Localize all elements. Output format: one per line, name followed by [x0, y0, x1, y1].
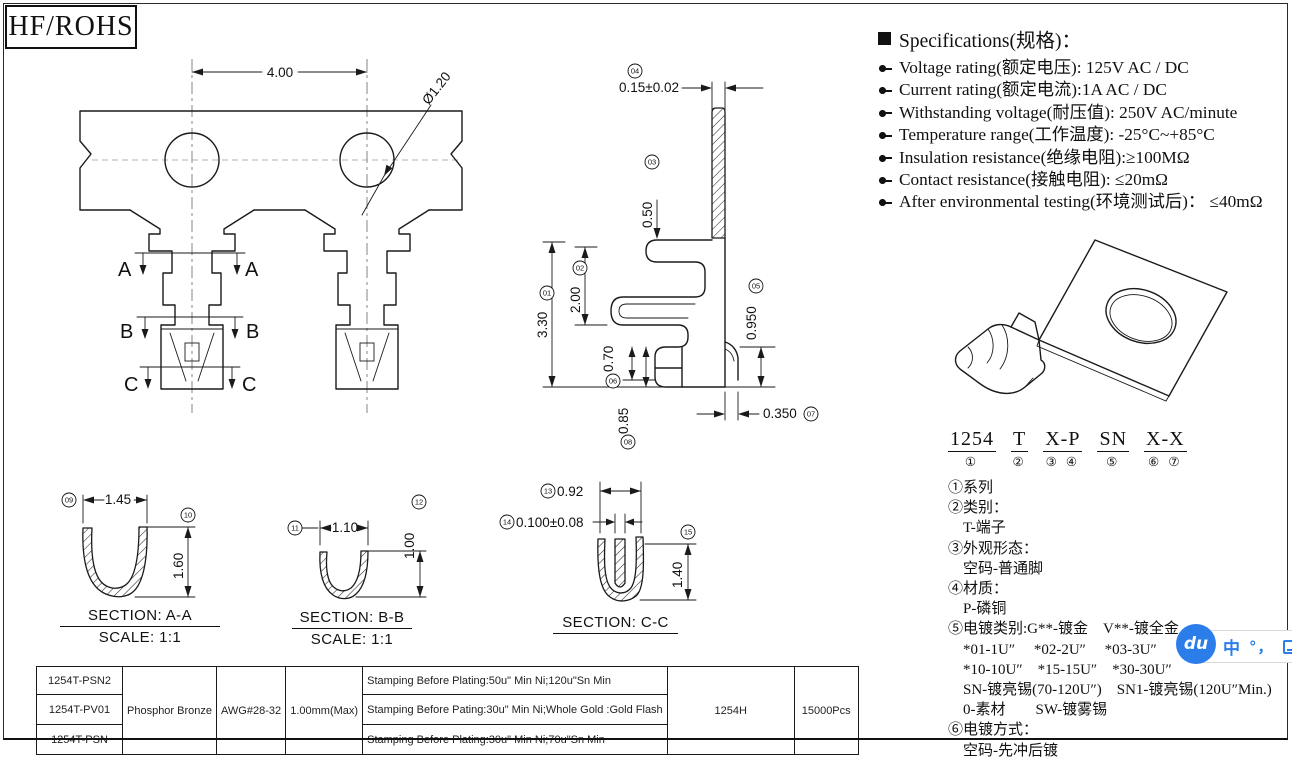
plating-cell: Stamping Before Plating:50u" Min Ni;120u…	[363, 667, 668, 695]
legend-line: SN-镀亮锡(70-120U″) SN1-镀亮锡(120U″Min.)	[948, 680, 1292, 700]
cut-line-c	[140, 367, 240, 381]
plate-hole	[1098, 279, 1183, 352]
plating-cell: Stamping Before Plating:30u" Min Ni;70u"…	[363, 725, 668, 755]
specs-list: Voltage rating(额定电压): 125V AC / DC Curre…	[878, 57, 1288, 214]
spec-item: Current rating(额定电流):1A AC / DC	[878, 79, 1288, 101]
specs-heading: Specifications(规格)：	[878, 24, 1288, 53]
section-aa-drawing: 1.45 09 1.60 10	[55, 485, 265, 607]
part-number-cell: 1254T-PSN2	[37, 667, 123, 695]
plating-cell: Stamping Before Pating:30u" Min Ni;Whole…	[363, 695, 668, 725]
insulation-cell: 1.00mm(Max)	[286, 667, 363, 755]
arrowhead	[140, 265, 147, 275]
dim-overall-height: 3.30	[535, 312, 550, 338]
dim-aa-height: 1.60	[171, 553, 186, 579]
section-aa-scale: SCALE: 1:1	[60, 627, 220, 646]
section-mark-c: C	[242, 374, 256, 396]
section-bb-drawing: 1.10 11 1.00 12	[280, 485, 470, 607]
balloon-12: 12	[412, 495, 426, 509]
pn-segment: X-X ⑥ ⑦	[1144, 428, 1187, 470]
svg-text:15: 15	[684, 528, 692, 537]
plate-thickness-edge	[1037, 340, 1169, 401]
balloon-13: 13	[541, 484, 555, 498]
balloon-11: 11	[288, 521, 302, 535]
arrowhead	[145, 379, 152, 389]
section-mark-b: B	[120, 321, 133, 343]
arrowhead	[384, 165, 392, 176]
legend-line: ②类别：	[948, 498, 1292, 518]
balloon-08: 08	[621, 435, 635, 449]
section-bb-scale: SCALE: 1:1	[292, 629, 412, 648]
balloon-07: 07	[804, 407, 818, 421]
legend-line: 空码-普通脚	[948, 559, 1292, 579]
pn-segment: 1254 ①	[948, 428, 996, 470]
balloon-14: 14	[500, 515, 514, 529]
dim-6: 0.70	[601, 346, 616, 372]
side-view-drawing: 3.30 01 2.00 02 0.50 03 0.15±0.02 04 0.9…	[535, 50, 865, 470]
arrowhead	[192, 69, 203, 76]
dim-pitch: 4.00	[267, 65, 293, 80]
balloon-02: 02	[573, 261, 587, 275]
dim-7: 0.350	[763, 406, 797, 421]
svg-text:04: 04	[631, 67, 639, 76]
section-mark-c: C	[124, 374, 138, 396]
dim-aa-width: 1.45	[105, 492, 131, 507]
dim-cc-width: 0.92	[557, 484, 583, 499]
arrowhead	[229, 379, 236, 389]
part-number-legend: ①系列 ②类别： T-端子 ③外观形态： 空码-普通脚 ④材质： P-磷铜 ⑤电…	[948, 478, 1292, 761]
section-mark-a: A	[118, 259, 132, 281]
u-channel	[320, 551, 368, 599]
part-number-cell: 1254T-PV01	[37, 695, 123, 725]
section-cc-label: SECTION: C-C	[553, 614, 678, 634]
section-bb-label: SECTION: B-B SCALE: 1:1	[292, 609, 412, 648]
balloon-09: 09	[62, 493, 76, 507]
center-lance	[615, 539, 625, 587]
spec-item: Insulation resistance(绝缘电阻):≥100MΩ	[878, 147, 1288, 169]
crimp-barrel	[655, 347, 682, 387]
dim-cc-slot: 0.100±0.08	[516, 515, 583, 530]
svg-text:09: 09	[65, 496, 73, 505]
front-view-drawing: 4.00 Ø1.20 A A B B C C	[40, 45, 510, 480]
arrowhead	[234, 265, 241, 275]
ime-punctuation-toggle[interactable]: °，	[1249, 636, 1274, 657]
title-block: HF/ROHS	[5, 5, 137, 49]
ime-logo[interactable]: du	[1176, 624, 1216, 664]
balloon-04: 04	[628, 64, 642, 78]
svg-text:14: 14	[503, 518, 511, 527]
terminal-3d-view	[945, 228, 1245, 433]
legend-line: ④材质：	[948, 579, 1292, 599]
spec-item: Contact resistance(接触电阻): ≤20mΩ	[878, 169, 1288, 191]
section-mark-a: A	[245, 259, 259, 281]
legend-line: 空码-先冲后镀	[948, 741, 1292, 761]
terminal-body	[956, 325, 1045, 394]
spec-item: Withstanding voltage(耐压值): 250V AC/minut…	[878, 102, 1288, 124]
beam-inner-line	[619, 304, 695, 318]
section-aa-title: SECTION: A-A	[60, 607, 220, 627]
section-cc-title: SECTION: C-C	[553, 614, 678, 634]
dim-5: 0.950	[744, 306, 759, 340]
svg-text:08: 08	[624, 438, 632, 447]
spec-item: After environmental testing(环境测试后)： ≤40m…	[878, 191, 1288, 213]
spec-item: Temperature range(工作温度): -25°C~+85°C	[878, 124, 1288, 146]
legend-line: ①系列	[948, 478, 1292, 498]
square-bullet-icon	[878, 32, 891, 45]
balloon-05: 05	[749, 279, 763, 293]
balloon-10: 10	[181, 508, 195, 522]
bent-tab-inner	[725, 349, 734, 361]
keyboard-icon[interactable]	[1283, 640, 1292, 654]
bent-tab-outer	[725, 342, 738, 380]
svg-text:05: 05	[752, 282, 760, 291]
arrowhead	[142, 329, 149, 339]
wire-gauge-cell: AWG#28-32	[217, 667, 286, 755]
part-number-code: 1254 ① T ② X-P ③ ④ SN ⑤ X-X ⑥ ⑦	[948, 428, 1292, 470]
balloon-01: 01	[540, 286, 554, 300]
page-title: HF/ROHS	[8, 11, 133, 43]
plate-hole-inner	[1103, 286, 1178, 349]
svg-text:11: 11	[291, 524, 299, 533]
cut-line-a	[135, 253, 245, 267]
legend-line: 0-素材 SW-镀雾锡	[948, 700, 1292, 720]
dim-bb-height: 1.00	[402, 533, 417, 559]
legend-line: P-磷铜	[948, 599, 1292, 619]
material-cell: Phosphor Bronze	[123, 667, 217, 755]
carrier-strip-outline	[80, 111, 462, 210]
part-number-panel: 1254 ① T ② X-P ③ ④ SN ⑤ X-X ⑥ ⑦ ①系列 ②类别：…	[948, 428, 1292, 761]
svg-text:13: 13	[544, 487, 552, 496]
table-row: 1254T-PSN2 Phosphor Bronze AWG#28-32 1.0…	[37, 667, 859, 695]
legend-line: ⑥电镀方式：	[948, 720, 1292, 740]
dim-thickness: 0.15±0.02	[619, 80, 679, 95]
housing-cell: 1254H	[667, 667, 794, 755]
spec-table: 1254T-PSN2 Phosphor Bronze AWG#28-32 1.0…	[36, 666, 859, 755]
dim-8: 0.85	[616, 408, 631, 434]
body-profile	[611, 240, 725, 387]
terminal-lance	[1011, 313, 1039, 340]
ime-language-toggle[interactable]: 中	[1223, 634, 1240, 659]
dim-hole-dia: Ø1.20	[419, 69, 453, 107]
svg-text:12: 12	[415, 498, 423, 507]
terminal-body-detail	[968, 325, 1033, 387]
u-channel	[83, 527, 147, 597]
section-cc-drawing: 0.92 13 0.100±0.08 14 1.40 15	[480, 470, 770, 620]
dim-3: 0.50	[640, 202, 655, 228]
hatched-tab	[712, 108, 725, 238]
dim-bb-width: 1.10	[332, 520, 358, 535]
legend-line: T-端子	[948, 518, 1292, 538]
dim-cc-height: 1.40	[670, 562, 685, 588]
carrier-plate	[1039, 240, 1227, 396]
arrowhead	[232, 329, 239, 339]
section-bb-title: SECTION: B-B	[292, 609, 412, 629]
pn-segment: SN ⑤	[1097, 428, 1129, 470]
svg-text:10: 10	[184, 511, 192, 520]
packing-cell: 15000Pcs	[794, 667, 858, 755]
part-number-cell: 1254T-PSN	[37, 725, 123, 755]
spec-item: Voltage rating(额定电压): 125V AC / DC	[878, 57, 1288, 79]
section-aa-label: SECTION: A-A SCALE: 1:1	[60, 607, 220, 646]
svg-text:01: 01	[543, 289, 551, 298]
section-mark-b: B	[246, 321, 259, 343]
pn-segment: X-P ③ ④	[1043, 428, 1082, 470]
dim-2: 2.00	[568, 287, 583, 313]
svg-text:07: 07	[807, 410, 815, 419]
balloon-15: 15	[681, 525, 695, 539]
specifications-panel: Specifications(规格)： Voltage rating(额定电压)…	[878, 24, 1288, 214]
svg-text:02: 02	[576, 264, 584, 273]
balloon-03: 03	[645, 155, 659, 169]
legend-line: ③外观形态：	[948, 539, 1292, 559]
balloon-06: 06	[606, 374, 620, 388]
pn-segment: T ②	[1011, 428, 1028, 470]
svg-text:03: 03	[648, 158, 656, 167]
arrowhead	[356, 69, 367, 76]
svg-text:06: 06	[609, 377, 617, 386]
